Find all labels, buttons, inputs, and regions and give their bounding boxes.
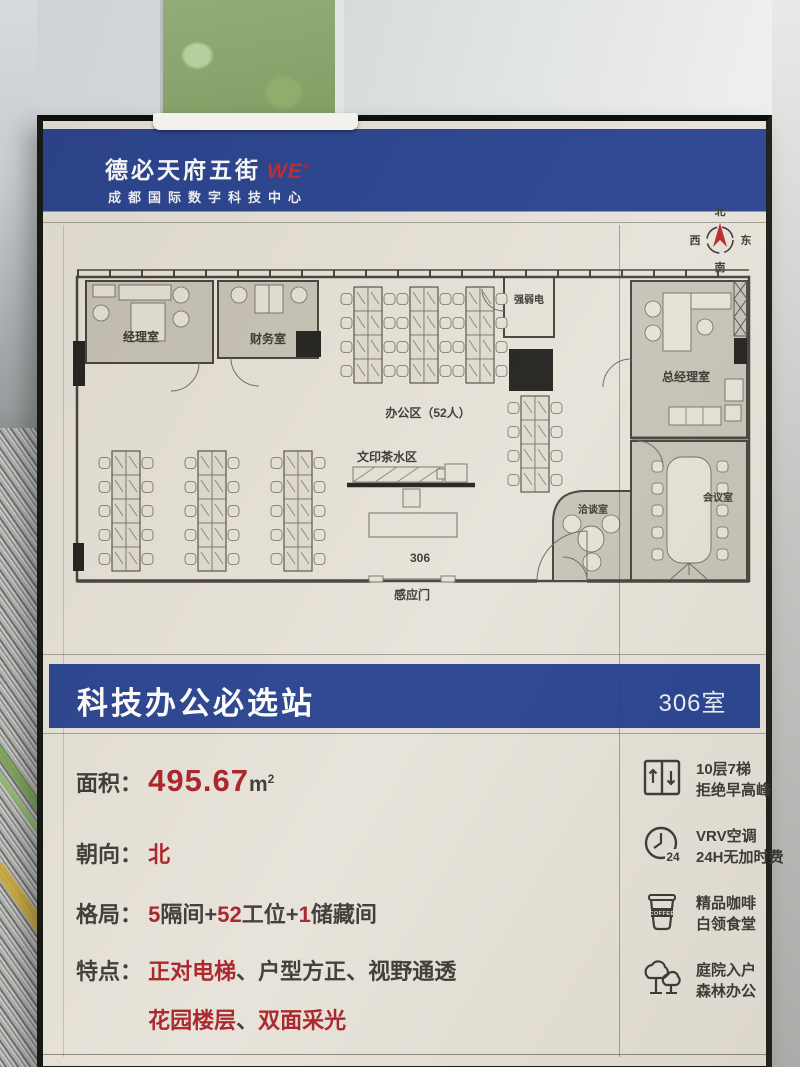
facing-value: 北 [148,842,170,867]
floorplan-poster: 德必天府五街WE+ 成都国际数字科技中心 北 南 西 东 [37,115,772,1067]
divider-line [43,654,766,655]
divider-line [43,1054,766,1055]
banner-title: 科技办公必选站 [77,678,315,723]
room-number-badge: 306室 [619,683,766,718]
divider-line [43,222,766,223]
room-label-gm: 总经理室 [662,369,710,384]
compass-north: 北 [715,204,726,218]
room-label-manager: 经理室 [123,329,159,344]
layout-label: 格局： [76,902,142,927]
amenity-garden: 庭院入户森林办公 [641,958,771,1025]
layout-value: 工位+ [242,902,299,927]
area-label: 面积： [76,771,142,796]
photo-scene: 德必天府五街WE+ 成都国际数字科技中心 北 南 西 东 [0,0,800,1067]
north-arrow-icon [713,223,727,247]
amenity-text: VRV空调24H无加时费 [696,824,784,868]
layout-row: 格局： 5隔间+52工位+1储藏间 [76,897,377,929]
amenity-text: 精品咖啡白领食堂 [696,891,756,935]
room-label-meeting: 会议室 [703,491,733,504]
compass-west: 西 [690,234,701,247]
svg-text:COFFEE: COFFEE [649,911,674,917]
layout-value: 1 [299,902,311,927]
carpet-yellow-stripe [0,862,37,943]
area-unit: m2 [249,773,274,796]
panel-crease [63,225,64,1057]
amenities-list: 10层7梯拒绝早高峰 24 VRV空调24H无加时费 [641,757,771,1025]
layout-value: 52 [217,902,241,927]
amenity-coffee: COFFEE 精品咖啡白领食堂 [641,891,771,958]
striped-carpet [0,428,37,1067]
poster-header: 德必天府五街WE+ 成都国际数字科技中心 [43,129,766,211]
svg-text:24: 24 [666,850,680,864]
room-label-print-tea: 文印茶水区 [357,449,417,464]
we-logo: WE+ [267,160,310,183]
room-label-electrical: 强弱电 [514,293,544,306]
compass-east: 东 [741,233,752,247]
amenity-text: 10层7梯拒绝早高峰 [696,757,771,801]
sensor-door-label: 感应门 [394,587,430,602]
features-line-1: 正对电梯、户型方正、视野通透 [148,959,456,984]
room-label-negotiation: 洽谈室 [578,503,608,516]
amenity-text: 庭院入户森林办公 [696,958,756,1002]
features-label: 特点： [76,959,142,984]
amenity-elevator: 10层7梯拒绝早高峰 [641,757,771,824]
room-label-office-area: 办公区（52人） [385,405,470,420]
panel-crease [619,225,620,1057]
features-row: 特点： 正对电梯、户型方正、视野通透 花园楼层、双面采光 [76,947,456,1045]
area-row: 面积： 495.67m2 [76,763,274,799]
layout-value: 隔间+ [160,902,217,927]
layout-value: 5 [148,902,160,927]
layout-value: 储藏间 [311,902,377,927]
room-label-finance: 财务室 [249,331,286,346]
facing-row: 朝向： 北 [76,837,170,869]
coffee-icon: COFFEE [641,891,683,933]
print-tea-counter [347,464,475,537]
area-value: 495.67 [148,763,249,798]
poster-clip [153,113,358,130]
floorplan-drawing: 经理室 财务室 强弱电 总经理室 办公区（52人） 文印茶水区 洽谈室 会议室 … [71,261,755,609]
brand-name: 德必天府五街 [105,157,261,183]
features-text: 正对电梯、户型方正、视野通透 花园楼层、双面采光 [148,947,456,1045]
electrical-room [504,277,554,337]
clock-icon: 24 [641,824,683,866]
facing-label: 朝向： [76,842,142,867]
features-line-2: 花园楼层、双面采光 [148,1008,346,1033]
right-wall [772,0,800,1067]
divider-line [43,733,766,734]
brand-lockup: 德必天府五街WE+ [105,151,310,185]
unit-number-label: 306 [410,551,430,565]
trees-icon [641,958,683,1000]
elevator-icon [641,757,683,799]
header-subtitle: 成都国际数字科技中心 [108,187,308,206]
amenity-hvac: 24 VRV空调24H无加时费 [641,824,771,891]
title-banner: 科技办公必选站 306室 [49,664,760,728]
